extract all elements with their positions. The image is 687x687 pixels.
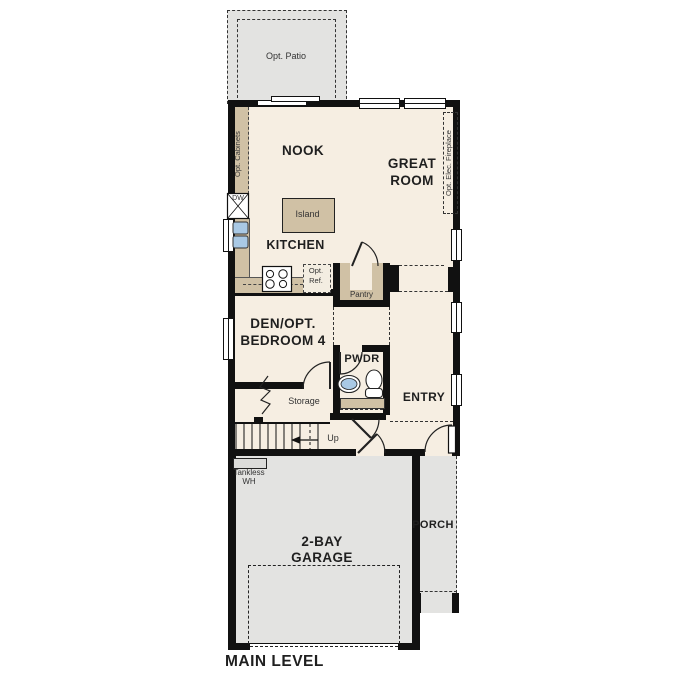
floor-plan: Opt. Patio NOOK GREAT ROOM Opt. Cabinets…	[0, 0, 687, 687]
powder-label: PWDR	[342, 353, 382, 365]
nook-label: NOOK	[268, 143, 338, 158]
opt-elec-fireplace-label: Opt. Elec. Fireplace	[444, 117, 456, 209]
kitchen-label: KITCHEN	[253, 238, 338, 252]
garage-line1: 2-BAY	[282, 534, 362, 550]
pantry-label: Pantry	[336, 290, 387, 299]
dishwasher-label: DW	[228, 195, 248, 202]
front-door	[425, 425, 456, 453]
porch-label: PORCH	[410, 519, 456, 531]
stairs-up-arrow	[291, 436, 318, 444]
opt-ref-label: Opt. Ref.	[303, 266, 329, 286]
stairs	[236, 424, 318, 449]
opt-cabinets-label: Opt. Cabinets	[233, 113, 245, 195]
great-room-line2: ROOM	[372, 172, 452, 189]
stove-fixture	[263, 267, 292, 292]
opt-patio-label: Opt. Patio	[246, 51, 326, 61]
garage-line2: GARAGE	[282, 550, 362, 566]
great-room-label: GREAT ROOM	[372, 155, 452, 189]
island-label: Island	[282, 209, 333, 219]
den-door	[303, 362, 330, 389]
opt-ref-line2: Ref.	[303, 276, 329, 286]
opt-ref-line1: Opt.	[303, 266, 329, 276]
toilet-fixture	[366, 370, 383, 398]
kitchen-sink-fixture	[233, 222, 248, 248]
up-label: Up	[323, 433, 343, 443]
great-room-line1: GREAT	[372, 155, 452, 172]
headroom-break-line	[260, 376, 270, 414]
tankless-wh-label: Tankless WH	[229, 468, 269, 486]
powder-sink-fixture	[338, 376, 360, 393]
den-line2: BEDROOM 4	[228, 332, 338, 349]
den-line1: DEN/OPT.	[228, 315, 338, 332]
tankless-line1: Tankless	[229, 468, 269, 477]
storage-label: Storage	[279, 396, 329, 406]
garage-label: 2-BAY GARAGE	[282, 534, 362, 566]
plan-title: MAIN LEVEL	[225, 653, 355, 671]
den-label: DEN/OPT. BEDROOM 4	[228, 315, 338, 349]
entry-label: ENTRY	[399, 390, 449, 404]
fixtures-layer	[0, 0, 687, 687]
pantry-door	[352, 242, 378, 266]
tankless-line2: WH	[229, 477, 269, 486]
